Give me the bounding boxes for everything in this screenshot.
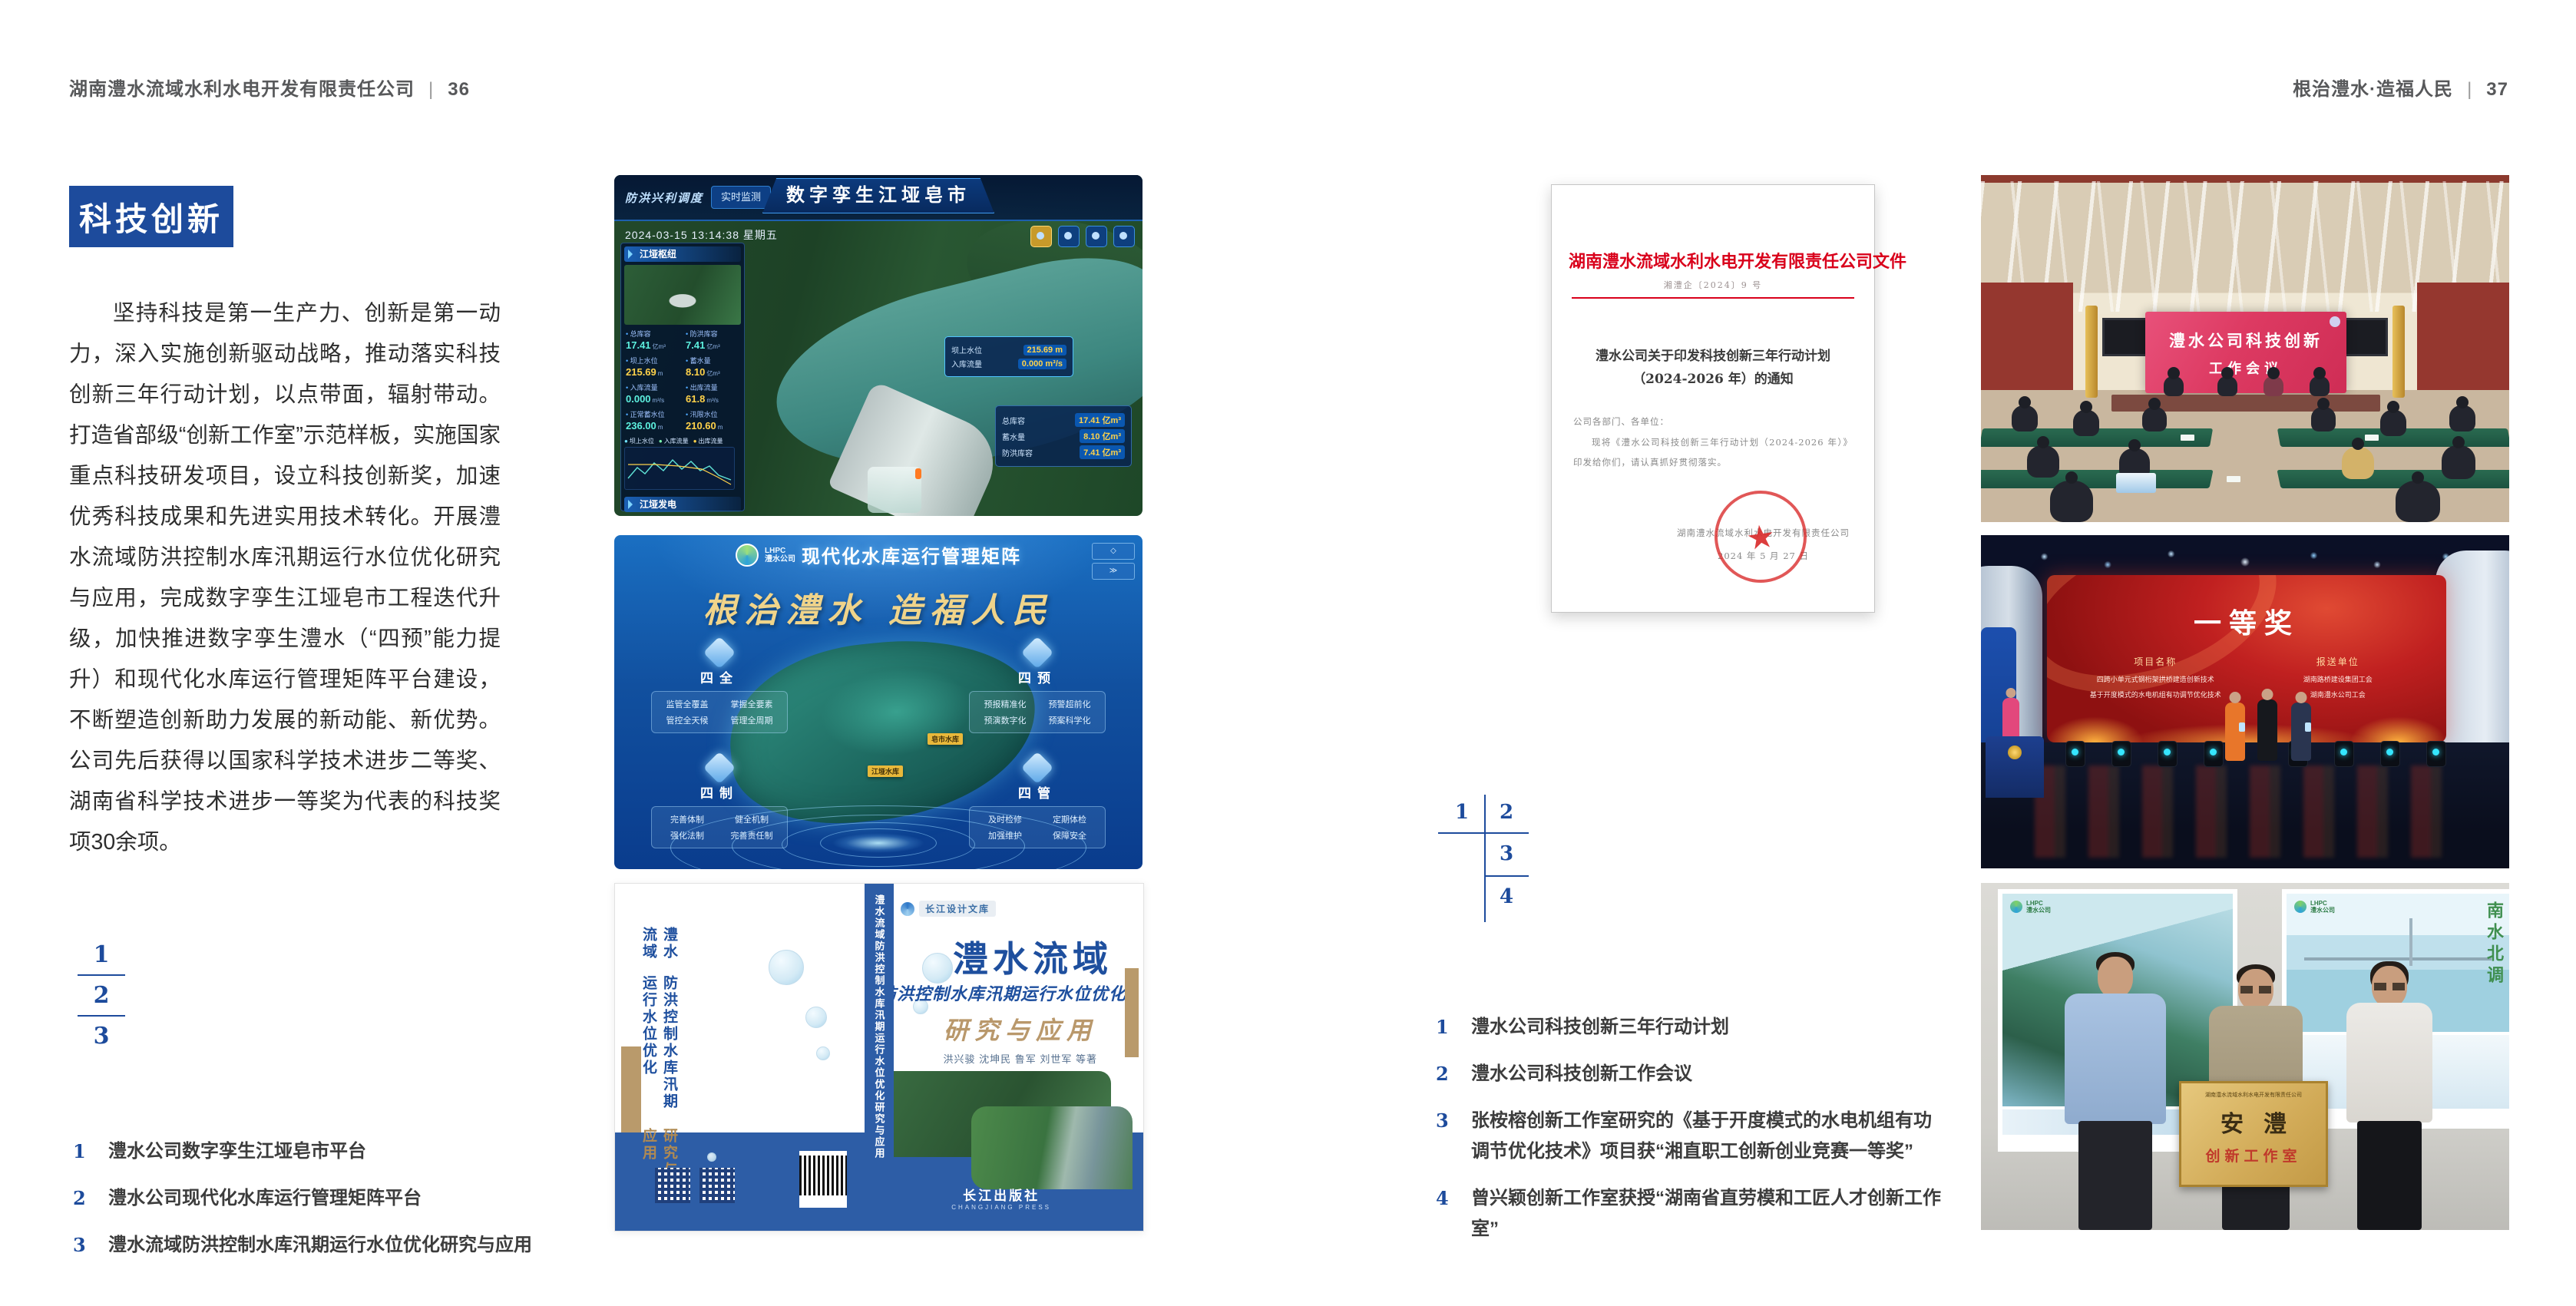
poster-calligraphy: 南水北调 xyxy=(2482,901,2506,987)
generation-stats: 年发电计划6.3000亿度 年累计发电量2.2907亿度 月累计发电量3359.… xyxy=(624,515,741,516)
document-title-line1: 澧水公司关于印发科技创新三年行动计划 xyxy=(1596,349,1830,364)
plaque-subtitle: 创新工作室 xyxy=(2181,1145,2326,1165)
red-wall-right xyxy=(2417,283,2509,390)
card-siyu: 四预 预报精准化预警超前化 预演数字化预案科学化 xyxy=(969,641,1106,733)
brand-en: LHPC xyxy=(765,547,785,555)
right-figure-index: 1 2 3 4 xyxy=(1438,795,1530,924)
caption-text: 张桉榕创新工作室研究的《基于开度模式的水电机组有功调节优化技术》项目获“湘直职工… xyxy=(1471,1106,1943,1167)
stat: 年发电计划6.3000亿度 xyxy=(624,515,681,516)
left-figure-index: 1 2 3 xyxy=(78,941,125,1050)
trousers xyxy=(2357,1121,2422,1230)
isbn-barcode xyxy=(799,1151,847,1208)
caption-number: 3 xyxy=(73,1230,91,1261)
user-icon[interactable] xyxy=(1030,226,1052,247)
podium xyxy=(1986,736,2044,798)
forecast-icon xyxy=(1021,636,1053,669)
map-label-jiangya[interactable]: 江垭水库 xyxy=(868,765,903,777)
plaque-header: 湖南澧水流域水利水电开发有限责任公司 xyxy=(2181,1091,2326,1099)
trophy xyxy=(2305,722,2311,732)
left-header-divider: | xyxy=(428,79,434,100)
innovation-studio-plaque: 湖南澧水流域水利水电开发有限责任公司 安澧 创新工作室 xyxy=(2179,1081,2328,1187)
stat: 防洪库容7.41亿m³ xyxy=(684,328,741,353)
caption-row: 1 澧水公司科技创新三年行动计划 xyxy=(1436,1012,1943,1043)
panel-title-generation: 江垭发电 xyxy=(624,497,741,512)
right-page-header: 根治澧水·造福人民|37 xyxy=(2293,74,2508,101)
locate-icon[interactable] xyxy=(1086,226,1107,247)
attendee-silhouette xyxy=(2142,407,2167,431)
project-item: 四跨小单元式钢桁架拱桥建造创新技术 xyxy=(2078,674,2233,684)
figure-matrix-platform: LHPC 澧水公司 现代化水库运行管理矩阵 ◇ ≫ 根治澧水 造福人民 皂市水库… xyxy=(614,535,1143,869)
face xyxy=(2098,957,2133,998)
publisher-logo-icon xyxy=(901,902,914,916)
stat: 年累计发电量2.2907亿度 xyxy=(684,515,741,516)
back-title-sub: 防洪控制水库汛期运行水位优化 xyxy=(638,975,680,1122)
side-stat-row: 蓄水量8.10 亿m³ xyxy=(1002,429,1125,443)
tooltip-row: 坝上水位215.69 m xyxy=(951,344,1066,355)
moving-head-light xyxy=(2065,741,2085,767)
lhpc-logo-icon: LHPC澧水公司 xyxy=(2294,900,2335,914)
speaker-silhouette xyxy=(2264,376,2283,396)
front-title-accent: 研究与应用 xyxy=(944,1011,1097,1046)
powerhouse-photo xyxy=(971,1106,1133,1189)
card-siquan: 四全 监管全覆盖掌握全要素 管控全天候管理全周期 xyxy=(651,641,788,733)
right-header-divider: | xyxy=(2467,79,2472,100)
stat: 出库流量61.8m³/s xyxy=(684,382,741,407)
map-label-zaoshi[interactable]: 皂市水库 xyxy=(928,733,963,745)
maintenance-icon xyxy=(1021,752,1053,784)
project-item: 基于开度模式的水电机组有功调节优化技术 xyxy=(2078,689,2233,699)
lhpc-logo-icon xyxy=(736,544,759,567)
chart-legend: 坝上水位 入库流量 出库流量 xyxy=(624,437,741,445)
red-wall-left xyxy=(1981,283,2073,390)
led-screen: 一等奖 项目名称 四跨小单元式钢桁架拱桥建造创新技术 基于开度模式的水电机组有功… xyxy=(2047,575,2446,742)
column-header: 报送单位 xyxy=(2260,655,2416,668)
glasses xyxy=(2240,986,2271,994)
alert-icon[interactable] xyxy=(1113,226,1135,247)
official-seal: ★ xyxy=(1708,484,1813,589)
publisher-block: 长江出版社 CHANGJIANG PRESS xyxy=(951,1185,1051,1211)
water-droplet xyxy=(805,1007,827,1028)
section-badge: 科技创新 xyxy=(69,186,233,247)
timestamp: 2024-03-15 13:14:38 星期五 xyxy=(625,227,778,243)
right-captions: 1 澧水公司科技创新三年行动计划 2 澧水公司科技创新工作会议 3 张桉榕创新工… xyxy=(1436,1012,1943,1261)
attendee-silhouette xyxy=(2050,481,2093,522)
publisher-name-en: CHANGJIANG PRESS xyxy=(951,1204,1051,1211)
front-tan-block xyxy=(1125,968,1139,1057)
unit-column: 报送单位 湖南路桥建设集团工会 湖南澧水公司工会 xyxy=(2260,655,2416,705)
presenter-suit xyxy=(2257,699,2277,761)
attendee-silhouette xyxy=(2027,445,2059,478)
brand-text: LHPC 澧水公司 xyxy=(765,547,795,564)
caption-number: 2 xyxy=(73,1183,91,1214)
brand-cn: 澧水公司 xyxy=(765,555,795,564)
moving-head-light xyxy=(2158,741,2178,767)
left-page-header: 湖南澧水流域水利水电开发有限责任公司|36 xyxy=(69,74,470,101)
lhpc-logo-icon: LHPC澧水公司 xyxy=(2010,900,2051,914)
moving-head-light xyxy=(2334,741,2354,767)
card-title: 四制 xyxy=(651,782,788,802)
stat: 入库流量0.000m³/s xyxy=(624,382,681,407)
document-salutation: 公司各部门、各单位： xyxy=(1573,415,1669,428)
attendee-silhouette xyxy=(2311,407,2336,431)
attendee-silhouette xyxy=(2380,410,2406,436)
stat: 汛限水位210.60m xyxy=(684,408,741,434)
map-tooltip: 坝上水位215.69 m 入库流量0.000 m³/s xyxy=(944,336,1073,377)
bridge-deck xyxy=(2304,957,2492,960)
calligraphy-slogan: 根治澧水 造福人民 xyxy=(703,583,1053,632)
caption-number: 1 xyxy=(1436,1012,1454,1043)
toolbar-icons xyxy=(1030,226,1135,247)
authors-line: 洪兴骏 沈坤民 鲁军 刘世军 等著 xyxy=(944,1051,1097,1066)
awardee-orange xyxy=(2225,703,2245,761)
document-title: 澧水公司关于印发科技创新三年行动计划 （2024-2026 年）的通知 xyxy=(1569,345,1857,391)
attendee-silhouette xyxy=(2073,410,2099,436)
panel-title-hub: 江垭枢纽 xyxy=(624,246,741,262)
figure-index-1: 1 xyxy=(1455,801,1469,824)
gold-pillar xyxy=(2085,306,2098,398)
figure-index-2: 2 xyxy=(1500,801,1513,824)
figure-index-3: 3 xyxy=(1500,842,1513,865)
unit-item: 湖南路桥建设集团工会 xyxy=(2260,674,2416,684)
caption-row: 3 澧水流域防洪控制水库汛期运行水位优化研究与应用 xyxy=(73,1230,564,1261)
document-number: 湘澧企〔2024〕9 号 xyxy=(1569,279,1857,291)
moving-head-light xyxy=(2204,741,2224,767)
water-level-chart xyxy=(624,447,735,490)
qr-code xyxy=(699,1168,735,1203)
glasses xyxy=(2374,983,2405,990)
dam-thumbnail xyxy=(624,265,741,325)
series-name: 长江设计文库 xyxy=(919,901,996,917)
caption-row: 4 曾兴颖创新工作室获授“湖南省直劳模和工匠人才创新工作室” xyxy=(1436,1183,1943,1245)
unit-item: 湖南澧水公司工会 xyxy=(2260,689,2416,699)
photo-award-ceremony: 一等奖 项目名称 四跨小单元式钢桁架拱桥建造创新技术 基于开度模式的水电机组有功… xyxy=(1981,535,2509,868)
attendee-silhouette xyxy=(2396,481,2440,522)
side-stat-row: 防洪库容7.41 亿m³ xyxy=(1002,445,1125,459)
stat: 总库容17.41亿m³ xyxy=(624,328,681,353)
attendee-silhouette xyxy=(2342,447,2374,479)
moving-head-light xyxy=(2426,741,2446,767)
team-member-left xyxy=(2058,957,2173,1230)
caption-row: 2 澧水公司现代化水库运行管理矩阵平台 xyxy=(73,1183,564,1214)
caption-row: 3 张桉榕创新工作室研究的《基于开度模式的水电机组有功调节优化技术》项目获“湘直… xyxy=(1436,1106,1943,1167)
right-header-slogan: 根治澧水·造福人民 xyxy=(2293,79,2453,100)
index-divider xyxy=(1484,875,1529,877)
caption-number: 4 xyxy=(1436,1183,1454,1245)
back-title-region: 澧水流域 xyxy=(638,927,680,969)
tab-realtime-monitoring[interactable]: 实时监测 xyxy=(711,186,771,209)
award-columns: 项目名称 四跨小单元式钢桁架拱桥建造创新技术 基于开度模式的水电机组有功调节优化… xyxy=(2078,655,2416,705)
institution-icon xyxy=(703,752,736,784)
card-title: 四全 xyxy=(651,667,788,686)
speaker-silhouette xyxy=(2217,376,2237,396)
side-stat-row: 总库容17.41 亿m³ xyxy=(1002,413,1125,427)
water-droplet xyxy=(816,1046,830,1060)
back-cover-title: 澧水流域 防洪控制水库汛期运行水位优化 研究与应用 xyxy=(638,927,680,1180)
card-title: 四预 xyxy=(969,667,1106,686)
caption-number: 3 xyxy=(1436,1106,1454,1167)
trophy xyxy=(2239,722,2245,732)
caption-number: 2 xyxy=(1436,1059,1454,1089)
card-items: 预报精准化预警超前化 预演数字化预案科学化 xyxy=(969,691,1106,733)
figure-index-1: 1 xyxy=(78,941,125,968)
monitor-icon xyxy=(703,636,736,669)
floor-reflections xyxy=(2035,765,2455,858)
tooltip-row: 入库流量0.000 m³/s xyxy=(951,358,1066,369)
white-tshirt xyxy=(2346,1003,2432,1122)
matrix-header: LHPC 澧水公司 现代化水库运行管理矩阵 xyxy=(736,541,1021,568)
figure-official-document: 湖南澧水流域水利水电开发有限责任公司文件 湘澧企〔2024〕9 号 澧水公司关于… xyxy=(1551,184,1875,613)
team-member-right xyxy=(2336,966,2443,1230)
right-page-number: 37 xyxy=(2486,79,2508,100)
index-divider xyxy=(78,974,125,976)
tissue-box xyxy=(2116,473,2156,493)
document-body: 现将《澧水公司科技创新三年行动计划（2024-2026 年）》印发给你们，请认真… xyxy=(1573,432,1853,472)
paper xyxy=(2227,476,2240,482)
mode-label: 防洪兴利调度 xyxy=(625,190,703,206)
document-page: 湖南澧水流域水利水电开发有限责任公司文件 湘澧企〔2024〕9 号 澧水公司关于… xyxy=(1569,185,1857,612)
document-letterhead: 湖南澧水流域水利水电开发有限责任公司文件 xyxy=(1569,248,1857,273)
figure-book-cover: 澧水流域 防洪控制水库汛期运行水位优化 研究与应用 澧水流域防洪控制水库汛期运行… xyxy=(614,883,1144,1232)
attendee-silhouette xyxy=(2442,445,2475,479)
menu-button[interactable]: ≫ xyxy=(1092,563,1135,580)
doc-icon[interactable] xyxy=(1058,226,1080,247)
water-droplet xyxy=(707,1152,716,1162)
star-icon: ★ xyxy=(1744,516,1777,557)
spine-title: 澧水流域防洪控制水库汛期运行水位优化研究与应用 xyxy=(872,894,887,1159)
section-paragraph: 坚持科技是第一生产力、创新是第一动力，深入实施创新驱动战略，推动落实科技创新三年… xyxy=(69,293,501,863)
paper xyxy=(2181,435,2194,441)
dam-spillway xyxy=(868,467,921,513)
figure-index-3: 3 xyxy=(78,1023,125,1050)
card-items: 监管全覆盖掌握全要素 管控全天候管理全周期 xyxy=(651,691,788,733)
left-captions: 1 澧水公司数字孪生江垭皂市平台 2 澧水公司现代化水库运行管理矩阵平台 3 澧… xyxy=(73,1136,564,1277)
moving-head-light xyxy=(2111,741,2131,767)
figure-index-2: 2 xyxy=(78,982,125,1009)
book-spine: 澧水流域防洪控制水库汛期运行水位优化研究与应用 xyxy=(865,884,894,1231)
photo-science-innovation-meeting: 澧水公司科技创新 工作会议 xyxy=(1981,175,2509,522)
left-data-panel: 江垭枢纽 总库容17.41亿m³ 防洪库容7.41亿m³ 坝上水位215.69m… xyxy=(620,243,745,511)
series-badge: 长江设计文库 xyxy=(901,901,996,917)
index-divider xyxy=(78,1015,125,1017)
golden-skyline-decor xyxy=(2047,699,2446,742)
attendee-silhouette xyxy=(2449,405,2475,431)
screen-title-line1: 澧水公司科技创新 xyxy=(2145,329,2346,352)
project-column: 项目名称 四跨小单元式钢桁架拱桥建造创新技术 基于开度模式的水电机组有功调节优化… xyxy=(2078,655,2233,705)
speaker-silhouette xyxy=(2310,376,2330,396)
speaker-silhouette xyxy=(2164,376,2184,396)
left-header-company: 湖南澧水流域水利水电开发有限责任公司 xyxy=(69,79,415,100)
photo-innovation-studio-team: LHPC澧水公司 LHPC澧水公司 南水北调 xyxy=(1981,883,2509,1230)
index-divider xyxy=(1484,795,1486,922)
water-droplet xyxy=(922,953,953,984)
index-divider xyxy=(1438,832,1529,834)
caption-row: 1 澧水公司数字孪生江垭皂市平台 xyxy=(73,1136,564,1167)
caption-text: 澧水公司科技创新工作会议 xyxy=(1471,1059,1692,1089)
paper xyxy=(2365,435,2379,441)
stat: 蓄水量8.10亿m³ xyxy=(684,355,741,380)
worker-figure xyxy=(915,468,921,479)
matrix-title: 现代化水库运行管理矩阵 xyxy=(802,541,1021,568)
red-rule xyxy=(1572,297,1854,299)
moving-head-light xyxy=(2380,741,2400,767)
attendee-silhouette xyxy=(2012,405,2038,431)
blue-polo-shirt xyxy=(2065,994,2166,1124)
front-title-region: 澧水流域 xyxy=(953,931,1113,982)
stat: 正常蓄水位236.00m xyxy=(624,408,681,434)
fullscreen-button[interactable]: ◇ xyxy=(1092,543,1135,560)
platform-title: 数字孪生江垭皂市 xyxy=(762,178,994,213)
caption-text: 曾兴颖创新工作室获授“湖南省直劳模和工匠人才创新工作室” xyxy=(1471,1183,1943,1245)
front-title-sub: 防洪控制水库汛期运行水位优化 xyxy=(879,980,1126,1005)
card-title: 四管 xyxy=(969,782,1106,802)
brochure-spread: 湖南澧水流域水利水电开发有限责任公司|36 根治澧水·造福人民|37 科技创新 … xyxy=(0,0,2576,1306)
caption-row: 2 澧水公司科技创新工作会议 xyxy=(1436,1059,1943,1089)
trousers xyxy=(2078,1121,2152,1230)
figure-digital-twin-platform: 防洪兴利调度 实时监测 洪水预报 防汛预警 方案预演 预案生成 调度执行 工程导… xyxy=(614,175,1143,516)
left-page-number: 36 xyxy=(448,79,470,100)
column-header: 项目名称 xyxy=(2078,655,2233,668)
caption-text: 澧水公司现代化水库运行管理矩阵平台 xyxy=(108,1183,422,1214)
side-stats-panel: 总库容17.41 亿m³ 蓄水量8.10 亿m³ 防洪库容7.41 亿m³ xyxy=(995,405,1132,467)
qr-code xyxy=(655,1168,690,1203)
plaque-title: 安澧 xyxy=(2181,1105,2326,1139)
awardee-navy xyxy=(2291,703,2311,761)
gold-pillar xyxy=(2392,306,2405,398)
bridge-pylon xyxy=(2409,918,2412,965)
figure-index-4: 4 xyxy=(1500,885,1513,908)
caption-number: 1 xyxy=(73,1136,91,1167)
caption-text: 澧水公司数字孪生江垭皂市平台 xyxy=(108,1136,366,1167)
water-droplet xyxy=(769,950,804,985)
reservoir-stats: 总库容17.41亿m³ 防洪库容7.41亿m³ 坝上水位215.69m 蓄水量8… xyxy=(624,328,741,434)
award-title: 一等奖 xyxy=(2047,601,2446,641)
screen-logo-icon xyxy=(2330,316,2340,327)
audience-desk-row xyxy=(1981,470,2214,488)
publisher-name: 长江出版社 xyxy=(951,1185,1051,1204)
caption-text: 澧水流域防洪控制水库汛期运行水位优化研究与应用 xyxy=(108,1230,532,1261)
stat: 坝上水位215.69m xyxy=(624,355,681,380)
document-title-line2: （2024-2026 年）的通知 xyxy=(1632,372,1794,387)
caption-text: 澧水公司科技创新三年行动计划 xyxy=(1471,1012,1729,1043)
